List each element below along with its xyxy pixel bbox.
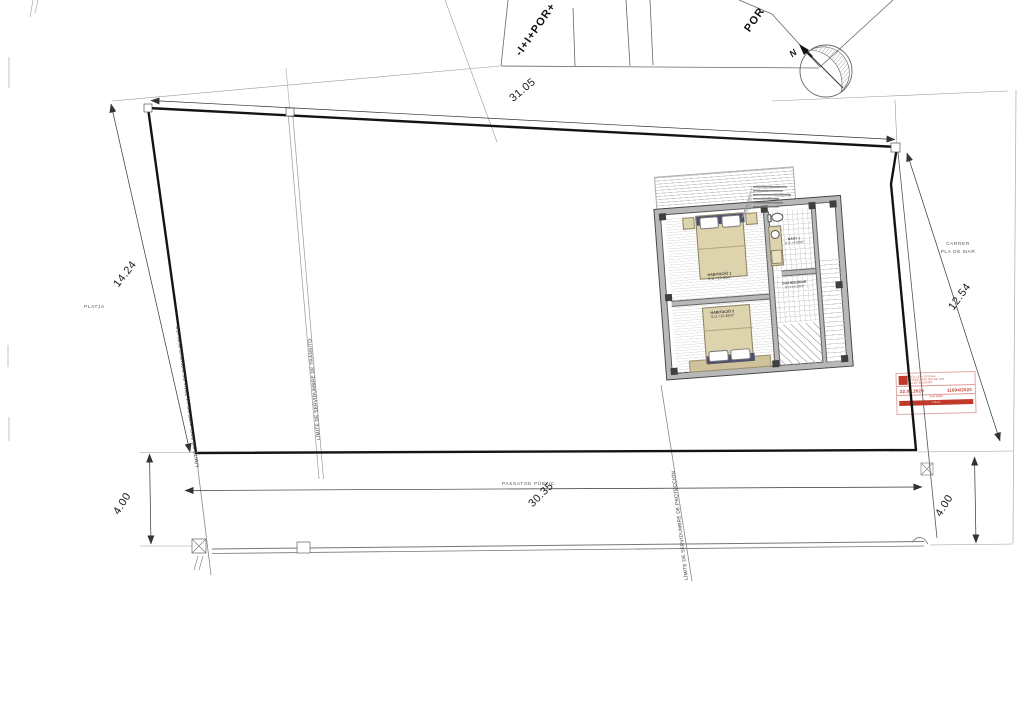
carrer-line1: CARRER	[930, 241, 986, 249]
column	[670, 368, 678, 376]
floor-plan: HABITACIÓ 1 S.U.=10.35m² BANY 1 S.U.=4.5…	[652, 163, 859, 387]
dim-bottomleft	[150, 454, 152, 544]
dimension-lines	[111, 101, 1013, 547]
linework-layer	[0, 0, 1024, 723]
dim-bottomright-label: 4.00	[934, 493, 956, 519]
stamp-footer: VISAT	[899, 399, 973, 406]
carrer-label: CARRER PLA DE MAR	[930, 241, 986, 256]
neighbor-right-label: POR	[743, 6, 767, 34]
column	[665, 294, 673, 302]
corner-marker	[891, 143, 900, 152]
corner-marker	[144, 104, 152, 112]
column	[772, 360, 780, 368]
pillow	[730, 348, 751, 360]
plan-outline: HABITACIÓ 1 S.U.=10.35m² BANY 1 S.U.=4.5…	[654, 196, 852, 379]
drawing-sheet: COL·LEGI OFICIAL D'ARQUITECTES DE LES IL…	[0, 0, 1024, 723]
stamp-number: 11694/2020	[947, 387, 972, 393]
dim-right-label: 12.54	[947, 282, 974, 313]
transito-line	[288, 112, 319, 479]
bed-sheet-line	[699, 245, 747, 250]
transito-ext	[286, 68, 290, 112]
north-label: N	[788, 48, 799, 59]
nightstand	[682, 217, 695, 230]
nightstand	[745, 212, 758, 225]
column	[659, 213, 667, 221]
limit-deslinde-label: LÍMITE DE DESLINDE DE LA ZONA DE DOMINIO…	[177, 325, 202, 467]
north-arrowhead	[799, 44, 809, 55]
north-arrow	[799, 44, 852, 97]
column	[760, 205, 768, 213]
stamp-org: COL·LEGI OFICIAL D'ARQUITECTES DE LES IL…	[910, 374, 945, 385]
limit-transito-label: LÍMITE DE SERVIDUMBRE DE TRÁNSITO	[309, 338, 323, 440]
deslinde-ext	[196, 453, 211, 575]
platja-label: PLATJA	[84, 306, 105, 311]
dim-bottomright	[975, 457, 977, 543]
neighbor-left-label: -I+I+POR+	[514, 1, 559, 58]
toilet-tank	[767, 214, 772, 222]
page-edge-marks	[8, 0, 1016, 543]
bath-cabinet	[771, 249, 783, 264]
survey-cross-marker	[921, 463, 933, 475]
column	[835, 281, 843, 289]
context-lines	[112, 0, 1008, 147]
right-survey-line	[898, 152, 937, 538]
pillow	[708, 350, 729, 362]
column	[808, 202, 816, 210]
passatge-label: PASSATGE PÚBLIC	[502, 483, 555, 488]
utility-box	[297, 542, 310, 553]
dim-top-label: 31.05	[508, 77, 538, 105]
carrer-line2: PLA DE MAR	[930, 249, 986, 257]
dim-left-label: 14.24	[112, 259, 139, 289]
pillow	[699, 216, 719, 229]
stamp-date: 22.06.2020	[900, 388, 924, 394]
bed-1	[695, 212, 748, 279]
pillow	[721, 215, 741, 228]
dim-bottomleft-label: 4.00	[112, 491, 134, 517]
dim-top	[151, 101, 895, 140]
neighbor-buildings	[501, 0, 893, 68]
visa-stamp: COL·LEGI OFICIAL D'ARQUITECTES DE LES IL…	[895, 371, 976, 415]
street-curb	[192, 537, 928, 570]
column	[841, 355, 849, 363]
utility-box	[192, 539, 206, 553]
column	[829, 200, 837, 208]
staircase	[775, 322, 822, 366]
bed-sheet-line	[705, 327, 753, 332]
stamp-logo-icon	[899, 375, 908, 384]
corner-marker	[286, 108, 294, 116]
limit-proteccion-label: LÍMITE DE SERVIDUMBRE DE PROTECCIÓN	[673, 470, 691, 580]
